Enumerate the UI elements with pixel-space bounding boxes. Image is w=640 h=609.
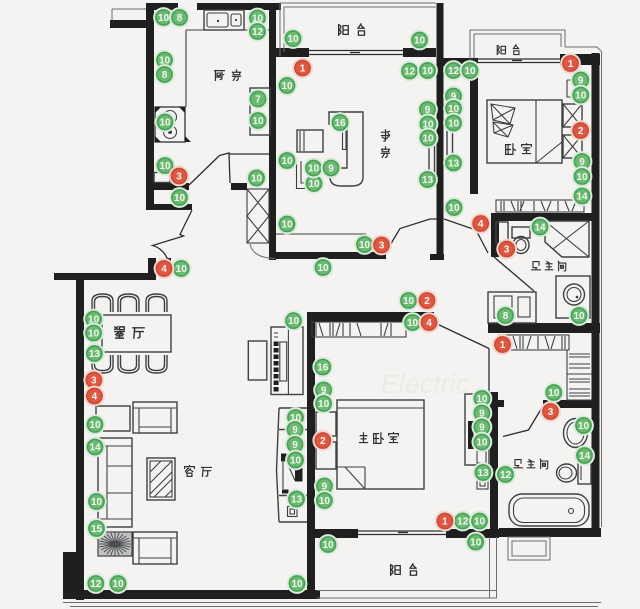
svg-text:12: 12	[457, 517, 469, 528]
svg-text:2: 2	[578, 126, 584, 137]
svg-text:10: 10	[422, 134, 434, 145]
svg-text:10: 10	[159, 161, 171, 172]
svg-text:10: 10	[322, 540, 334, 551]
svg-text:12: 12	[448, 66, 460, 77]
svg-text:10: 10	[578, 421, 590, 432]
svg-text:14: 14	[579, 451, 591, 462]
svg-text:1: 1	[300, 64, 306, 75]
svg-text:4: 4	[161, 264, 167, 275]
svg-text:16: 16	[317, 363, 329, 374]
svg-text:12: 12	[252, 27, 264, 38]
svg-text:8: 8	[177, 13, 183, 24]
svg-text:10: 10	[291, 579, 303, 590]
svg-text:16: 16	[334, 118, 346, 129]
svg-text:14: 14	[534, 223, 546, 234]
svg-text:13: 13	[477, 468, 489, 479]
svg-text:10: 10	[464, 66, 476, 77]
svg-text:8: 8	[162, 70, 168, 81]
svg-text:10: 10	[548, 388, 560, 399]
svg-text:3: 3	[91, 376, 97, 387]
svg-text:10: 10	[359, 240, 371, 251]
svg-text:10: 10	[576, 172, 588, 183]
svg-text:8: 8	[503, 311, 509, 322]
svg-text:Electric: Electric	[381, 369, 470, 399]
svg-text:10: 10	[252, 116, 264, 127]
svg-text:10: 10	[176, 264, 188, 275]
svg-text:15: 15	[91, 524, 103, 535]
svg-text:10: 10	[575, 91, 587, 102]
svg-text:10: 10	[414, 36, 426, 47]
svg-text:10: 10	[88, 329, 100, 340]
svg-text:10: 10	[308, 164, 320, 175]
svg-text:7: 7	[255, 95, 261, 106]
svg-text:10: 10	[474, 517, 486, 528]
svg-text:10: 10	[470, 538, 482, 549]
svg-text:10: 10	[290, 456, 302, 467]
svg-text:10: 10	[448, 203, 460, 214]
svg-text:14: 14	[89, 443, 101, 454]
svg-text:10: 10	[112, 579, 124, 590]
svg-text:10: 10	[422, 66, 434, 77]
svg-text:10: 10	[281, 156, 293, 167]
svg-text:10: 10	[174, 193, 186, 204]
svg-text:10: 10	[158, 13, 170, 24]
svg-text:12: 12	[500, 470, 512, 481]
svg-text:10: 10	[288, 316, 300, 327]
svg-text:1: 1	[568, 59, 574, 70]
svg-text:10: 10	[89, 420, 101, 431]
svg-text:10: 10	[287, 34, 299, 45]
svg-text:3: 3	[176, 172, 182, 183]
svg-text:3: 3	[504, 245, 510, 256]
svg-text:13: 13	[448, 159, 460, 170]
svg-text:4: 4	[92, 392, 98, 403]
svg-text:10: 10	[317, 263, 329, 274]
svg-text:3: 3	[548, 407, 554, 418]
svg-text:9: 9	[328, 164, 334, 175]
svg-text:3: 3	[379, 241, 385, 252]
svg-text:10: 10	[281, 220, 293, 231]
svg-text:2: 2	[424, 296, 430, 307]
svg-text:10: 10	[403, 296, 415, 307]
svg-text:10: 10	[319, 496, 331, 507]
svg-text:12: 12	[404, 67, 416, 78]
svg-text:10: 10	[308, 179, 320, 190]
svg-text:13: 13	[422, 175, 434, 186]
svg-text:13: 13	[89, 349, 101, 360]
svg-text:10: 10	[281, 81, 293, 92]
svg-text:10: 10	[251, 174, 263, 185]
svg-text:12: 12	[90, 579, 102, 590]
svg-text:14: 14	[576, 192, 588, 203]
svg-text:10: 10	[448, 119, 460, 130]
svg-text:10: 10	[91, 497, 103, 508]
svg-text:1: 1	[500, 340, 506, 351]
svg-text:2: 2	[320, 436, 326, 447]
svg-text:10: 10	[159, 118, 171, 129]
svg-text:10: 10	[318, 399, 330, 410]
svg-text:4: 4	[426, 318, 432, 329]
svg-text:10: 10	[573, 311, 585, 322]
svg-text:10: 10	[476, 438, 488, 449]
svg-text:4: 4	[478, 219, 484, 230]
svg-text:13: 13	[291, 495, 303, 506]
svg-text:9: 9	[292, 440, 298, 451]
svg-text:1: 1	[442, 517, 448, 528]
svg-text:10: 10	[407, 318, 419, 329]
